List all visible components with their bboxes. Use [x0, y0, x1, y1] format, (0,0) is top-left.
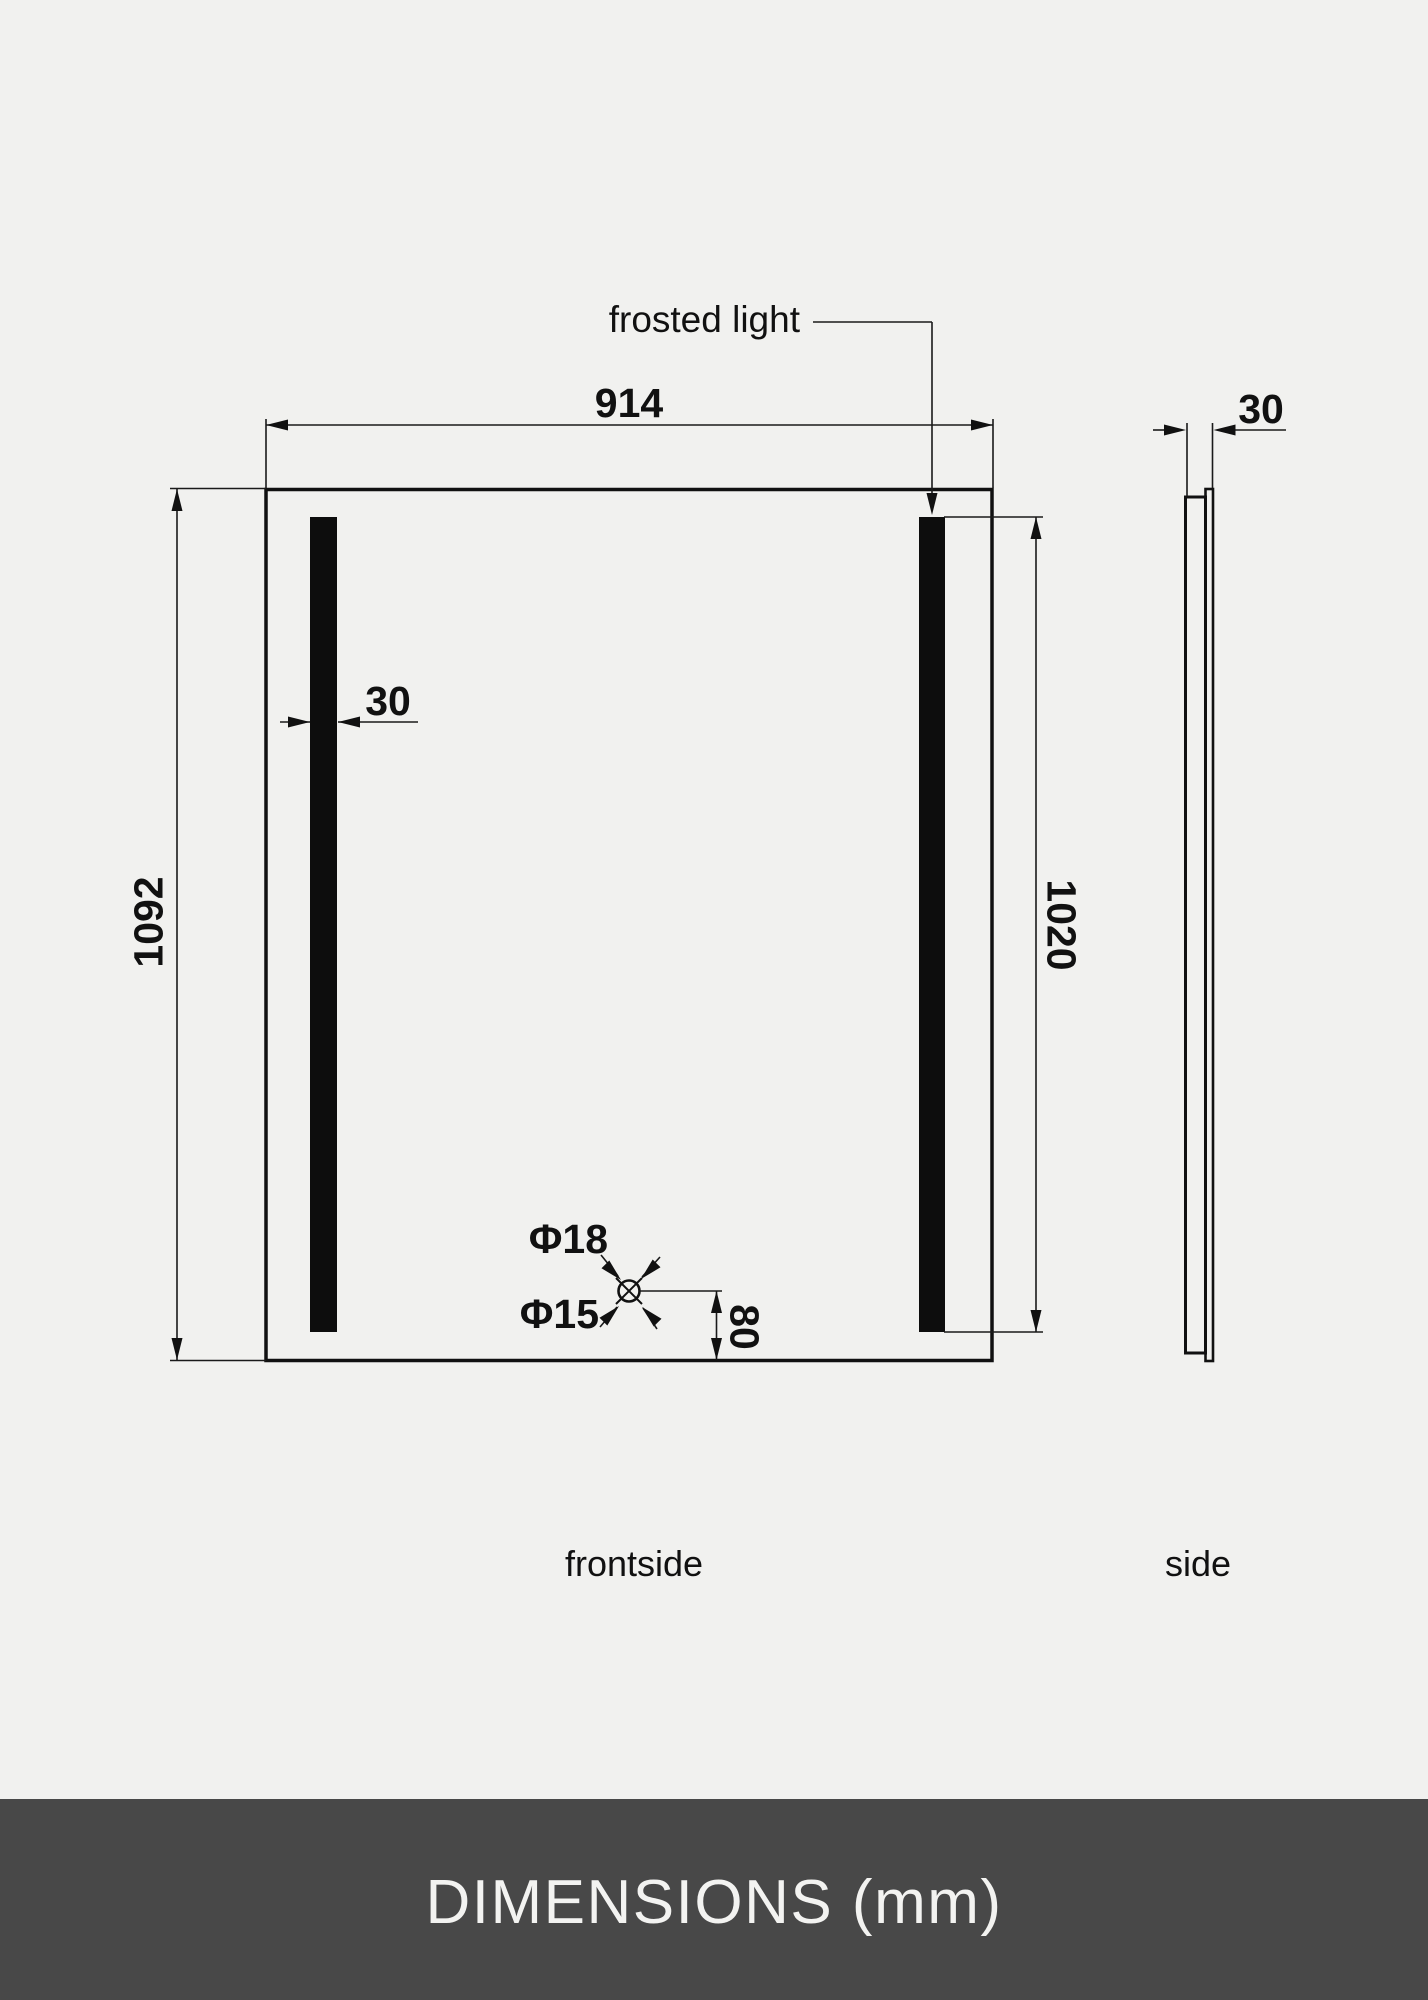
arrowhead-top	[1031, 517, 1042, 539]
thickness-dimension: 30	[1153, 386, 1286, 496]
arrowhead-right	[1214, 425, 1236, 436]
hole-offset-value: 80	[722, 1304, 768, 1350]
right-light-bar	[919, 517, 945, 1332]
side-label: side	[1165, 1543, 1231, 1584]
width-value: 914	[595, 380, 664, 426]
arrowhead-down	[927, 493, 938, 515]
light-height-dimension: 1020	[944, 517, 1085, 1332]
frontside-label: frontside	[565, 1543, 703, 1584]
arrowhead-top	[711, 1291, 722, 1313]
arrowhead-bottom	[172, 1338, 183, 1360]
side-glass-panel	[1206, 489, 1214, 1361]
bar-width-value: 30	[365, 678, 411, 724]
arrowhead	[641, 1260, 661, 1280]
footer-band: DIMENSIONS (mm)	[0, 1799, 1428, 2000]
light-height-value: 1020	[1039, 879, 1085, 970]
arrowhead-top	[172, 489, 183, 511]
arrowhead-bottom	[711, 1338, 722, 1360]
arrowhead-left	[266, 420, 288, 431]
side-view	[1186, 489, 1214, 1361]
footer-title: DIMENSIONS (mm)	[425, 1868, 1002, 1937]
arrowhead-right	[971, 420, 993, 431]
height-dimension: 1092	[126, 489, 267, 1361]
front-view	[266, 490, 992, 1361]
hole-inner-diameter-value: Φ15	[520, 1291, 599, 1337]
dimension-diagram: 914 1092 1020 30 frosted light	[0, 0, 1428, 2000]
arrowhead-left	[288, 717, 310, 728]
arrowhead-bottom	[1031, 1310, 1042, 1332]
height-value: 1092	[126, 876, 172, 967]
hole-offset-dimension: 80	[640, 1291, 768, 1360]
arrowhead	[600, 1306, 620, 1326]
frosted-light-label: frosted light	[609, 299, 801, 340]
bar-width-dimension: 30	[280, 678, 418, 728]
dimensions-page: 914 1092 1020 30 frosted light	[0, 0, 1428, 2000]
arrowhead-right	[338, 717, 360, 728]
width-dimension: 914	[266, 380, 993, 488]
mirror-outline	[266, 490, 992, 1361]
arrowhead	[642, 1307, 662, 1327]
thickness-value: 30	[1238, 386, 1284, 432]
hole-outer-diameter-value: Φ18	[529, 1216, 608, 1262]
side-back-panel	[1186, 497, 1206, 1353]
arrowhead-left	[1164, 425, 1186, 436]
left-light-bar	[310, 517, 337, 1332]
mounting-hole-callout: Φ18 Φ15	[520, 1216, 662, 1337]
arrowhead	[602, 1261, 622, 1281]
